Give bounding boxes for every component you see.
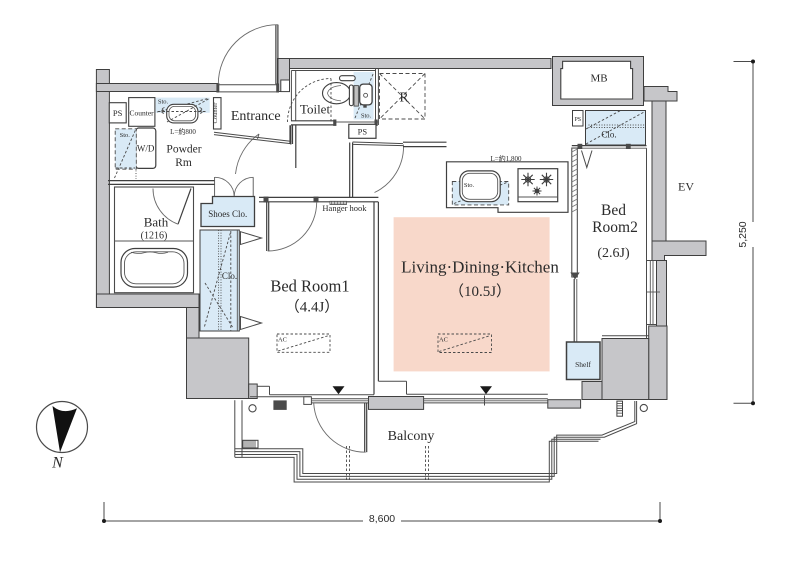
svg-text:Clo.: Clo.	[222, 271, 237, 281]
svg-text:Sto.: Sto.	[120, 132, 131, 139]
svg-text:Sto.: Sto.	[361, 113, 372, 120]
svg-text:PS: PS	[113, 108, 123, 118]
svg-text:MB: MB	[590, 73, 607, 85]
svg-text:Sto.: Sto.	[158, 99, 169, 106]
svg-text:Clo.: Clo.	[601, 130, 616, 140]
svg-text:Room2: Room2	[592, 219, 638, 236]
svg-text:EV: EV	[678, 180, 694, 194]
svg-text:Counter: Counter	[130, 109, 155, 118]
svg-text:AC: AC	[278, 337, 287, 344]
svg-text:L=約1,800: L=約1,800	[491, 154, 522, 163]
svg-text:Toilet: Toilet	[300, 102, 331, 117]
svg-text:Entrance: Entrance	[231, 109, 281, 124]
svg-text:Hanger hook: Hanger hook	[322, 203, 367, 213]
svg-text:Living·Dining·Kitchen: Living·Dining·Kitchen	[401, 258, 559, 277]
svg-text:Shoes Clo.: Shoes Clo.	[208, 209, 247, 219]
svg-text:Balcony: Balcony	[388, 429, 435, 444]
svg-text:8,600: 8,600	[369, 513, 395, 525]
svg-text:5,250: 5,250	[737, 221, 749, 247]
svg-text:Bed: Bed	[601, 202, 626, 219]
svg-text:AC: AC	[439, 337, 448, 344]
svg-text:W/D: W/D	[137, 144, 155, 154]
svg-text:N: N	[51, 455, 64, 472]
svg-text:L=約800: L=約800	[170, 127, 196, 136]
svg-text:Counter: Counter	[212, 102, 219, 124]
svg-text:(1216): (1216)	[141, 231, 168, 242]
svg-text:(2.6J): (2.6J)	[597, 246, 630, 261]
svg-text:PS: PS	[574, 117, 581, 123]
svg-text:Rm: Rm	[175, 157, 192, 169]
svg-text:Bath: Bath	[144, 215, 169, 230]
svg-text:PS: PS	[358, 127, 368, 137]
svg-text:Powder: Powder	[166, 144, 201, 156]
svg-text:（4.4J）: （4.4J）	[285, 299, 340, 316]
svg-text:（10.5J）: （10.5J）	[449, 283, 511, 300]
svg-text:R: R	[399, 90, 408, 105]
svg-text:Shelf: Shelf	[575, 360, 591, 369]
svg-text:Sto.: Sto.	[464, 182, 475, 189]
svg-text:Bed Room1: Bed Room1	[270, 277, 349, 296]
